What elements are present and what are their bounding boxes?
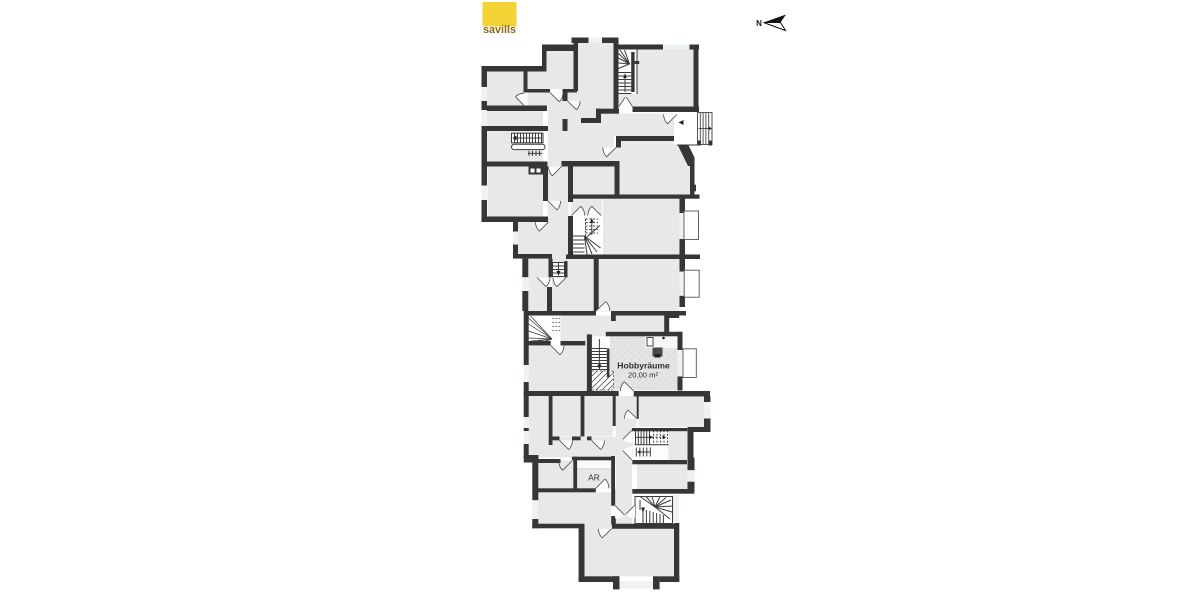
svg-text:20,00 m²: 20,00 m²: [628, 371, 658, 380]
svg-text:N: N: [756, 19, 762, 28]
svg-text:Hobbyräume: Hobbyräume: [617, 361, 670, 371]
svg-text:savills: savills: [483, 24, 516, 36]
svg-text:AR: AR: [588, 473, 600, 483]
